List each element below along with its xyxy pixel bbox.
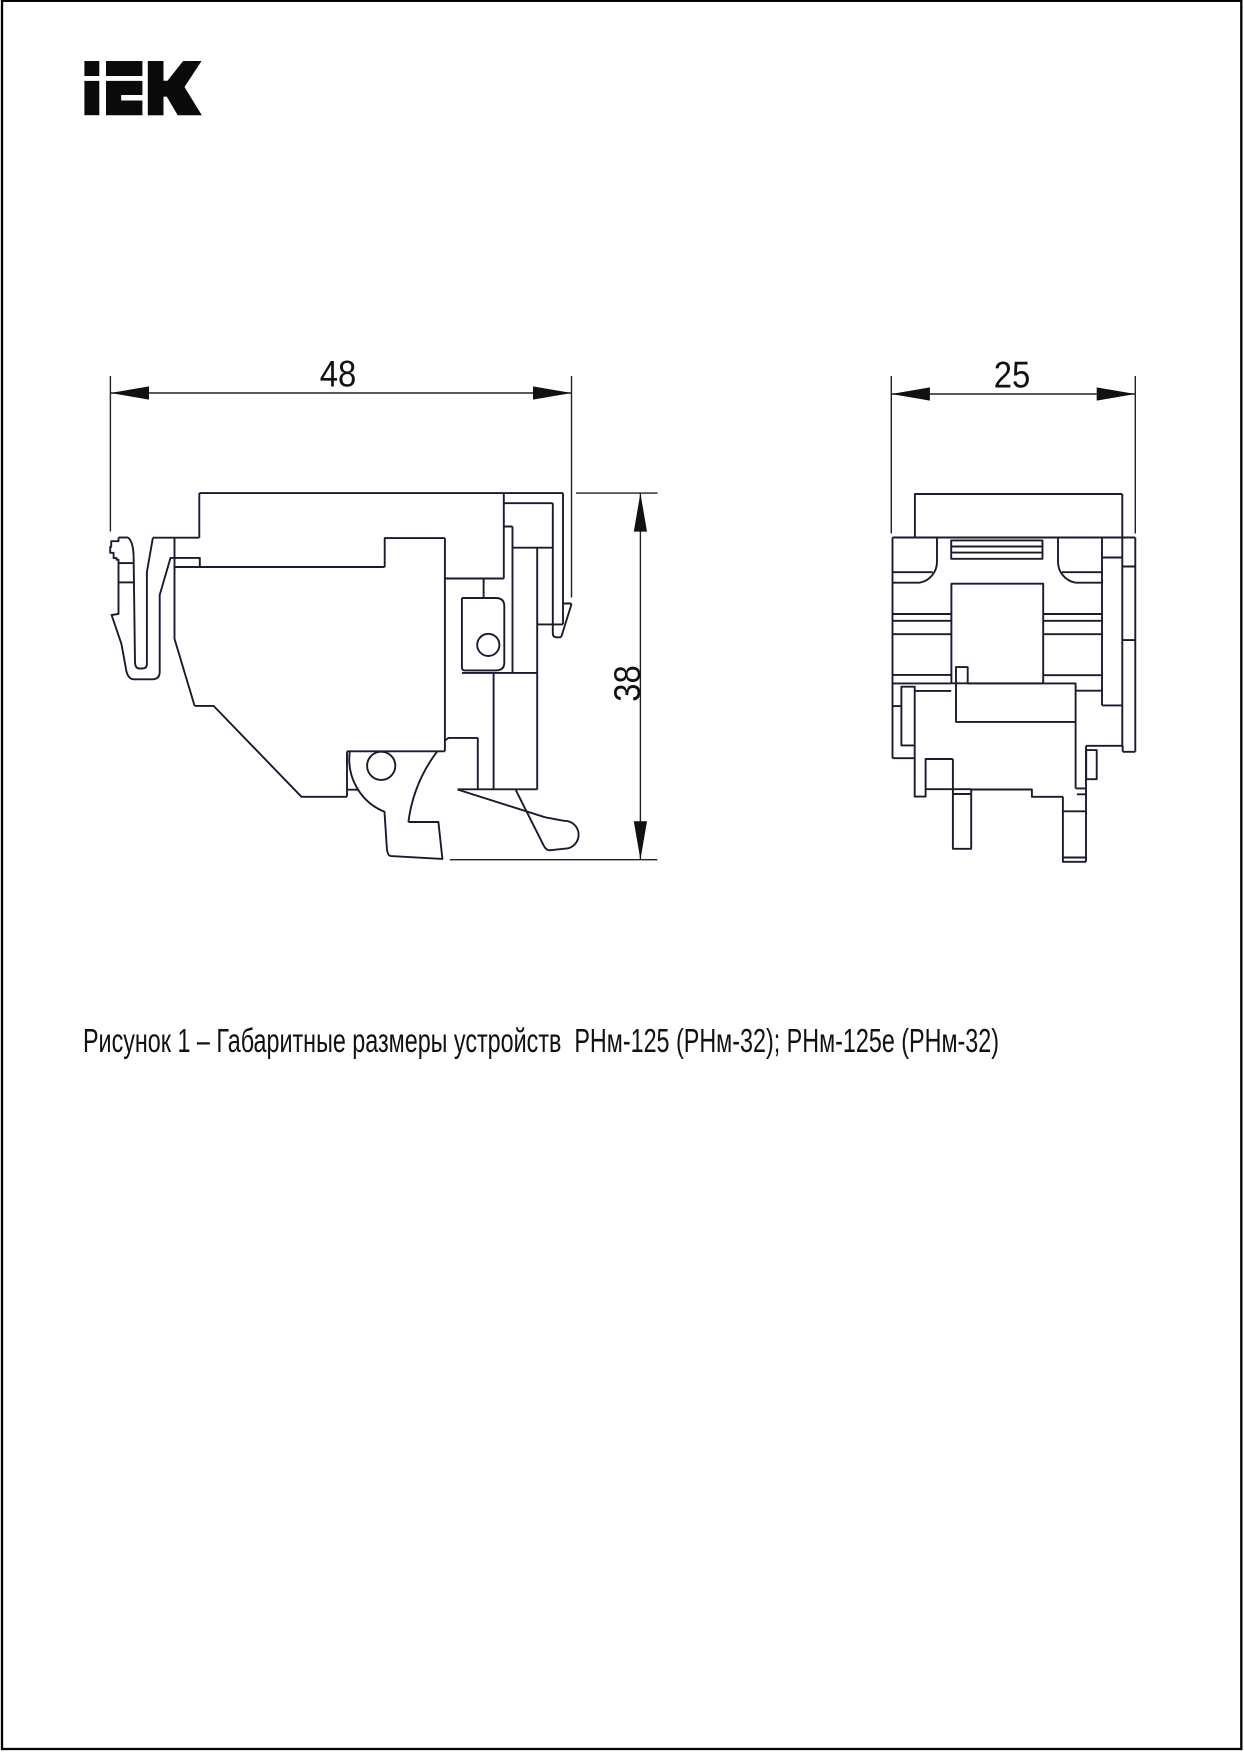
svg-text:48: 48 [320,354,357,395]
svg-text:25: 25 [994,355,1031,396]
svg-text:38: 38 [607,665,648,702]
